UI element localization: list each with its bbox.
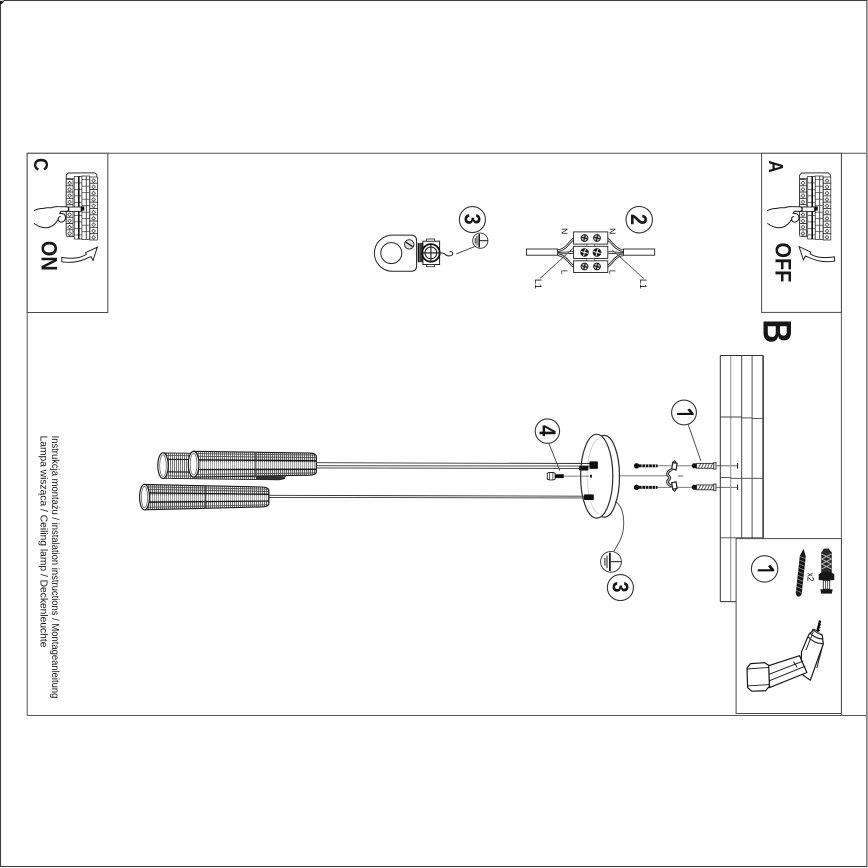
svg-text:ON: ON [37,241,62,271]
svg-text:2: 2 [626,214,652,225]
svg-text:Lampa wisząca / Ceiling lamp /: Lampa wisząca / Ceiling lamp / Deckenleu… [37,436,48,648]
svg-text:N: N [608,228,618,234]
svg-text:B: B [754,319,798,343]
svg-text:A: A [764,161,787,173]
svg-text:L: L [560,270,570,275]
svg-text:L1: L1 [638,279,648,289]
svg-text:3: 3 [459,214,485,225]
svg-text:L: L [608,270,618,275]
svg-text:Instrukcja montażu / instalati: Instrukcja montażu / instalation instruc… [49,436,60,699]
svg-text:N: N [560,228,570,234]
svg-text:x2: x2 [805,573,816,582]
svg-text:OFF: OFF [771,243,796,283]
svg-text:C: C [29,158,52,171]
svg-text:L1: L1 [533,279,543,289]
svg-text:3: 3 [607,582,633,593]
svg-text:4: 4 [534,425,560,436]
